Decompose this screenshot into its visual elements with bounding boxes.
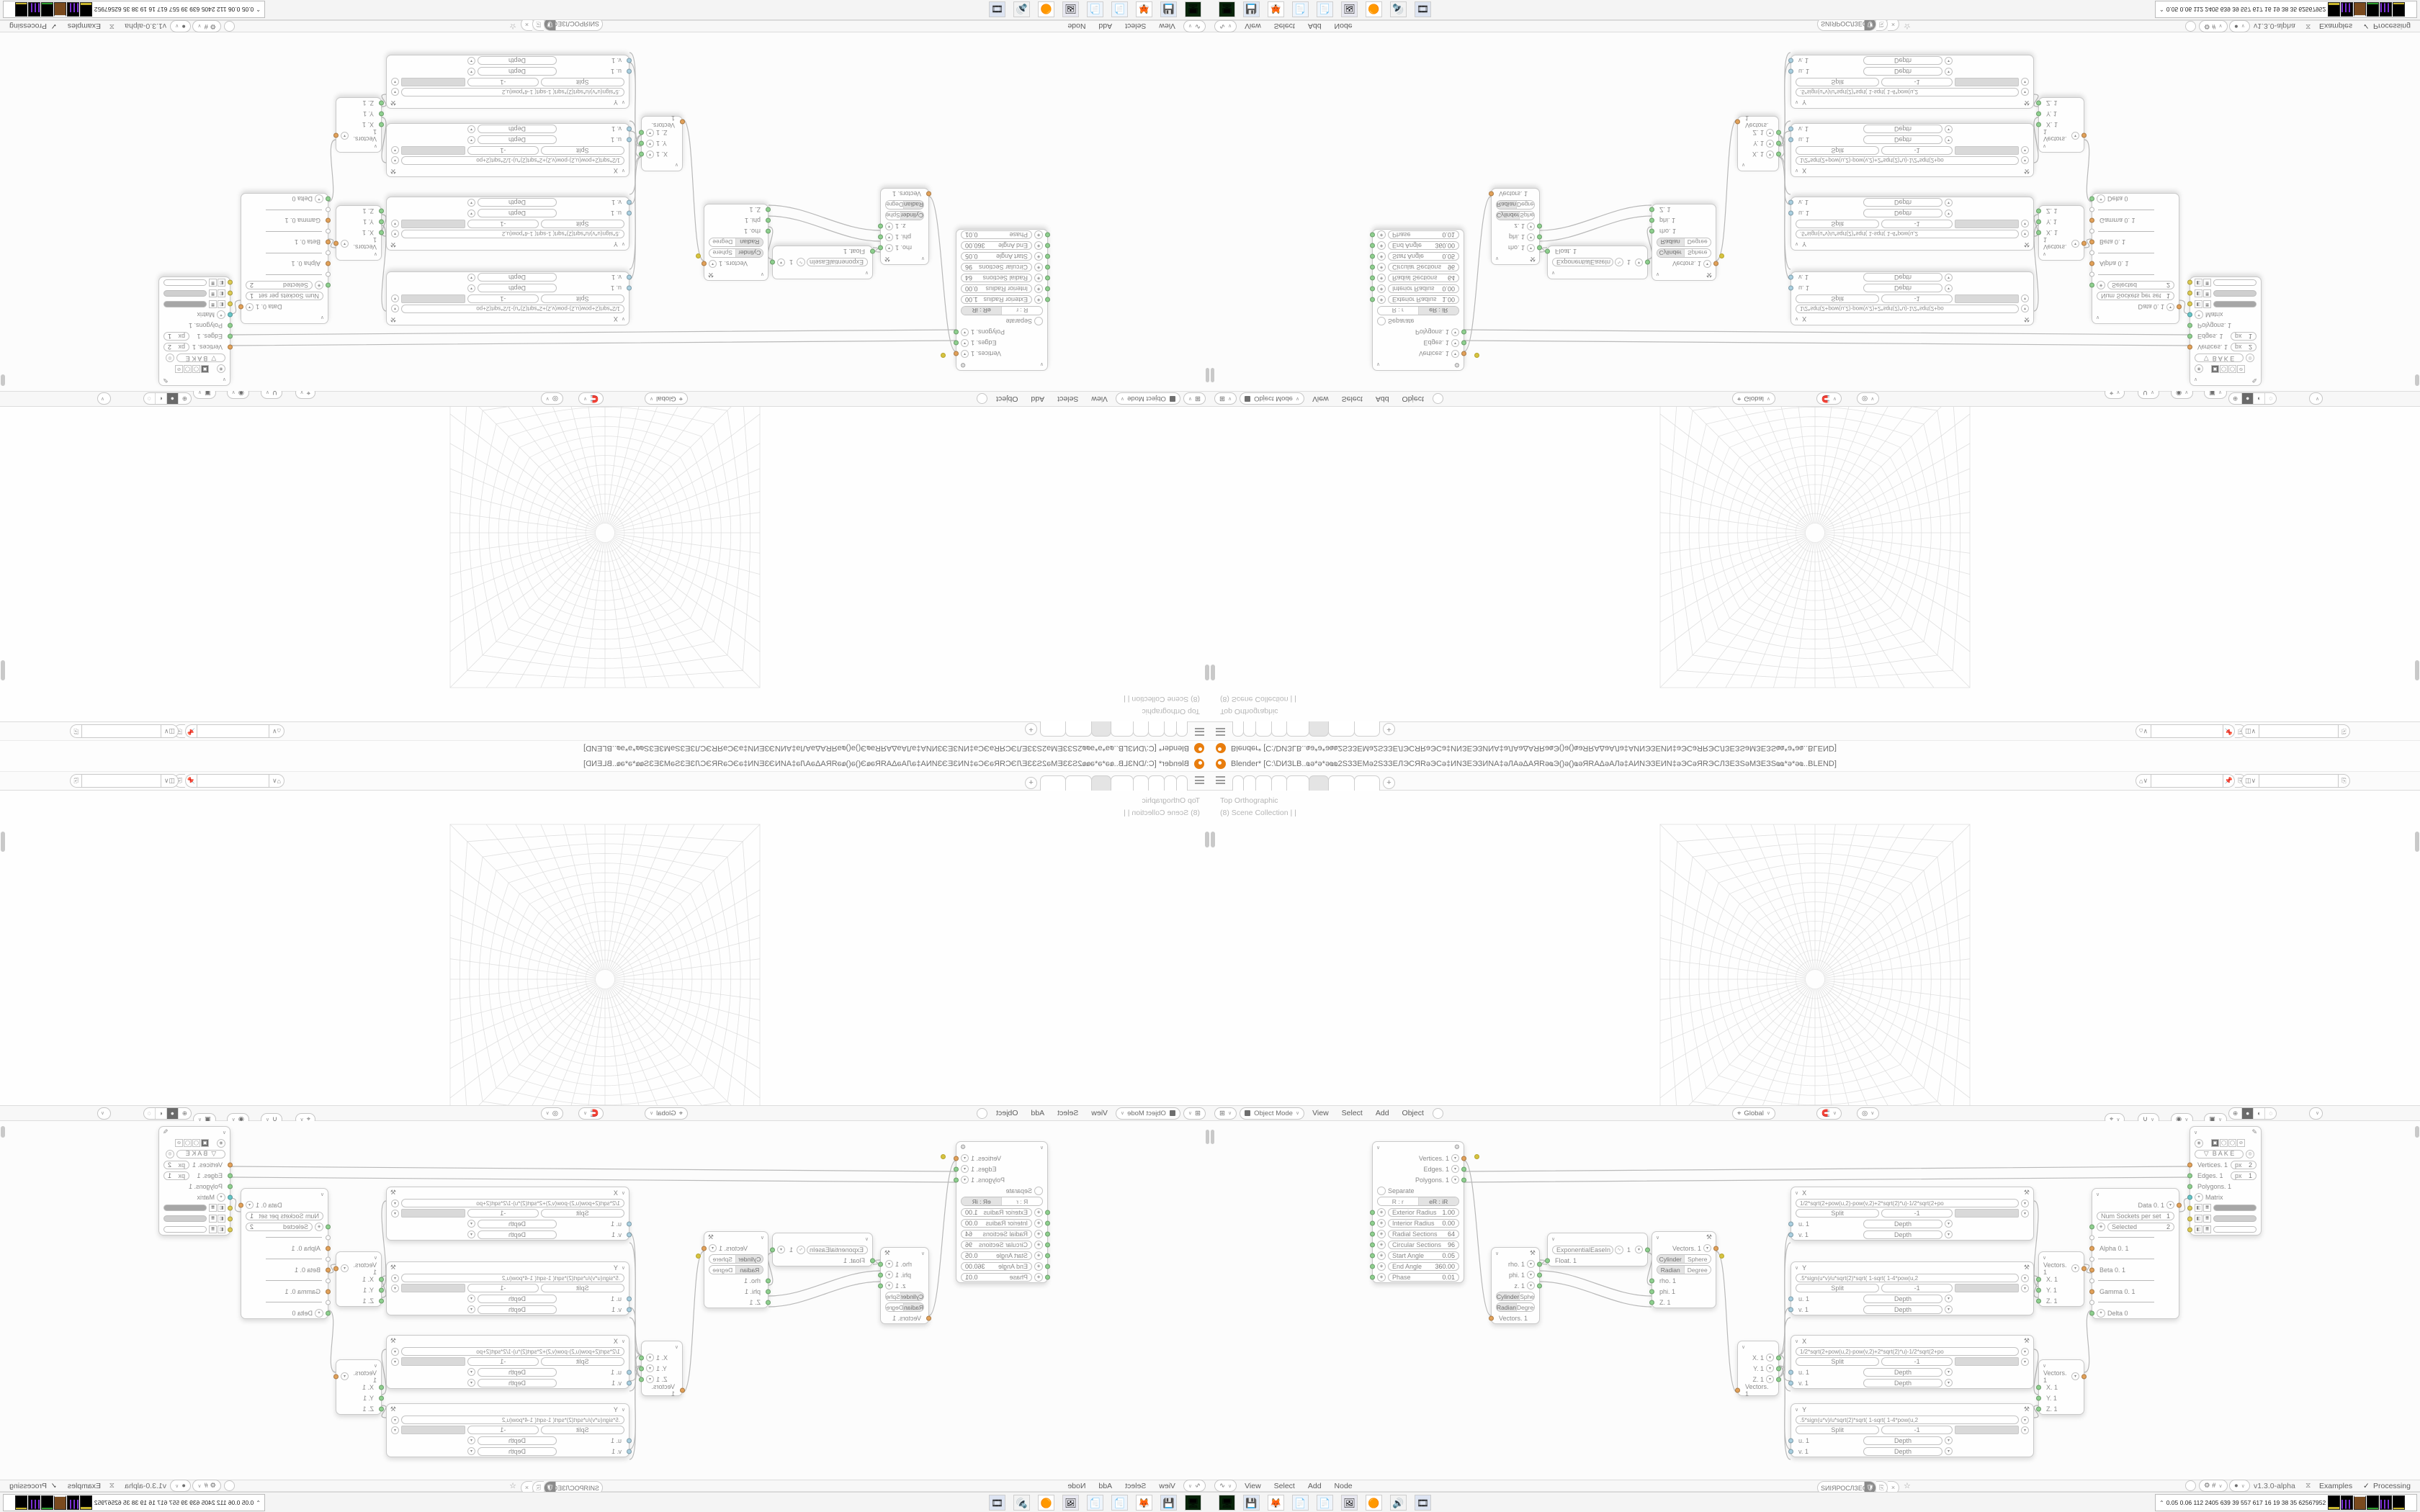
socket-menu-button[interactable]: ▾: [777, 258, 785, 266]
socket[interactable]: [2089, 1300, 2094, 1305]
node-easing[interactable]: ∨ExponentialEaseIn∨∿1▾Float. 1: [1547, 246, 1648, 279]
reroute-dot[interactable]: [1474, 353, 1479, 358]
socket[interactable]: [2089, 283, 2094, 288]
socket-menu-button[interactable]: ▾: [2021, 78, 2029, 86]
taskbar-speaker-icon[interactable]: 🔊: [1390, 1, 1407, 17]
socket-menu-button[interactable]: ▾: [1451, 1165, 1459, 1173]
node-formula-x2[interactable]: ∨X⚒1/2*sqrt(2+pow(u,2)-pow(v,2)+2*sqrt(2…: [1791, 123, 2034, 177]
socket[interactable]: [766, 1289, 771, 1294]
socket-menu-button[interactable]: ▾: [1703, 1244, 1711, 1252]
ne-menu-view[interactable]: View: [1159, 1482, 1175, 1490]
socket[interactable]: [1045, 243, 1050, 248]
taskbar-notepad-1-icon[interactable]: 📄: [1292, 1495, 1309, 1511]
shading-dropdown[interactable]: ∨: [97, 393, 111, 405]
scene-pin-icon[interactable]: 📌: [185, 724, 197, 738]
draw-verts-toggle[interactable]: ▣: [201, 1139, 209, 1147]
socket[interactable]: [766, 1300, 771, 1305]
socket[interactable]: [627, 1232, 632, 1237]
ne-menu-node[interactable]: Node: [1335, 22, 1353, 31]
node-sidebar-handle[interactable]: [2415, 1126, 2419, 1138]
draw-faces-toggle[interactable]: ◯: [184, 1139, 192, 1147]
node-easing[interactable]: ∨ExponentialEaseIn∨∿1▾Float. 1: [1547, 1233, 1648, 1266]
socket-menu-button[interactable]: ▾: [391, 305, 399, 313]
socket-menu-button[interactable]: ▾: [1527, 244, 1535, 252]
node-header[interactable]: ∨: [1548, 1233, 1647, 1244]
socket[interactable]: [2187, 280, 2192, 285]
reroute-dot[interactable]: [696, 1254, 701, 1259]
node-header[interactable]: ∨X⚒: [387, 166, 629, 176]
vp-menu-object[interactable]: Object: [996, 1109, 1018, 1117]
bake-settings-icon[interactable]: ◎: [2246, 354, 2254, 363]
socket[interactable]: [1045, 1264, 1050, 1269]
workspace-tab-4[interactable]: [1133, 775, 1149, 791]
socket[interactable]: [379, 101, 384, 106]
node-vec-polar-in[interactable]: ∨⚒Vectors. 1▾CylinderSphereRadianDegreer…: [1652, 1231, 1716, 1308]
socket[interactable]: [379, 209, 384, 214]
taskbar-blender-icon[interactable]: 🟠: [1366, 1495, 1382, 1511]
socket-menu-button[interactable]: ▾: [961, 1154, 969, 1162]
sidebar-collapse-handle[interactable]: [1, 660, 5, 680]
ne-menu-view[interactable]: View: [1245, 1482, 1261, 1490]
socket[interactable]: [1045, 233, 1050, 238]
socket[interactable]: [2177, 305, 2182, 310]
socket-menu-button[interactable]: ▾: [2021, 1348, 2029, 1356]
socket[interactable]: [878, 1283, 883, 1288]
node-header-icon[interactable]: ⚒: [390, 99, 396, 107]
checkbox-circle[interactable]: [1377, 318, 1386, 326]
socket[interactable]: [2187, 1205, 2192, 1210]
window-titlebar[interactable]: Blender* [C:\DИЗLB..ҩә*ә*әҩҩ2SЗЗEMә2SЗЗE…: [1210, 740, 2420, 756]
node-header-icon[interactable]: ⚒: [1530, 1249, 1536, 1257]
checkbox-circle[interactable]: [1034, 1187, 1043, 1195]
shading-mode-4[interactable]: ◌: [144, 394, 155, 405]
scene-browse-button[interactable]: ⌂∨: [2136, 774, 2151, 788]
node-vec-polar-in[interactable]: ∨⚒Vectors. 1▾CylinderSphereRadianDegreer…: [704, 1231, 768, 1308]
socket-menu-button[interactable]: ▾: [391, 1274, 399, 1282]
socket[interactable]: [639, 130, 644, 135]
workspace-tab-2[interactable]: [1243, 721, 1256, 737]
viewport-extra-button[interactable]: [977, 394, 987, 405]
socket[interactable]: [2187, 1227, 2192, 1232]
node-header[interactable]: ∨⚒: [1492, 1248, 1539, 1259]
socket-menu-button[interactable]: ▾: [1766, 1354, 1774, 1362]
socket[interactable]: [2036, 1287, 2041, 1292]
scene-browse-button[interactable]: ⌂∨: [269, 774, 284, 788]
shading-mode-1[interactable]: ⊕: [2229, 1108, 2242, 1119]
socket[interactable]: [954, 1166, 959, 1171]
socket[interactable]: [1645, 260, 1650, 265]
examples-menu[interactable]: Examples: [68, 22, 101, 31]
node-header-icon[interactable]: ⚒: [390, 315, 396, 323]
node-header-icon[interactable]: ⚙: [1454, 361, 1460, 369]
bake-settings-icon[interactable]: ◎: [166, 1150, 174, 1158]
node-viewer-draw[interactable]: ∨✎◉▣◯◯⊘▽ B A K E◎Vertices. 1px2Edges. 1p…: [158, 1126, 230, 1236]
ne-blank-button[interactable]: [2185, 1480, 2196, 1491]
node-header[interactable]: ∨X⚒: [387, 314, 629, 325]
ne-menu-node[interactable]: Node: [1067, 1482, 1085, 1490]
socket-menu-button[interactable]: ▾: [2071, 1372, 2079, 1380]
sidebar-collapse-handle[interactable]: [2415, 660, 2419, 680]
node-torus[interactable]: ∨⚙Vertices. 1▾Edges. 1▾Polygons. 1▾Separ…: [1372, 229, 1464, 371]
node-header[interactable]: ∨Y⚒: [1791, 97, 2033, 108]
socket-menu-button[interactable]: ▾: [1945, 1220, 1953, 1228]
node-vec-in-2[interactable]: ∨Vectors. 1▾X. 1Y. 1Z. 1: [2038, 1359, 2084, 1415]
workspace-tab-5[interactable]: [1286, 721, 1309, 737]
socket[interactable]: [2187, 334, 2192, 339]
socket[interactable]: [1370, 1253, 1375, 1258]
vp-menu-select[interactable]: Select: [1057, 1109, 1078, 1117]
socket[interactable]: [627, 1449, 632, 1454]
node-editor[interactable]: ∨⚙Vertices. 1▾Edges. 1▾Polygons. 1▾Separ…: [1210, 32, 2420, 391]
socket[interactable]: [627, 211, 632, 216]
socket-menu-button[interactable]: ▾: [2166, 1201, 2174, 1209]
socket[interactable]: [379, 230, 384, 235]
socket[interactable]: [1649, 207, 1654, 212]
socket[interactable]: [2036, 112, 2041, 117]
socket[interactable]: [2187, 1173, 2192, 1178]
bake-button[interactable]: ▽ B A K E: [2195, 354, 2244, 363]
socket[interactable]: [926, 1315, 931, 1320]
taskbar-media-window-icon[interactable]: 🖼: [1062, 1495, 1079, 1511]
socket[interactable]: [379, 1385, 384, 1390]
socket[interactable]: [627, 69, 632, 74]
node-vec-in-1[interactable]: ∨Vectors. 1▾X. 1Y. 1Z. 1: [336, 1251, 382, 1307]
taskbar-blender-icon[interactable]: 🟠: [1038, 1, 1054, 17]
viewport-3d[interactable]: Top Orthographic (8) Scene Collection | …: [0, 407, 1210, 721]
node-formula-y1[interactable]: ∨Y⚒.5*sign(u*v)/u*sqrt(2)*sqrt( 1-sqrt( …: [1791, 197, 2034, 251]
socket[interactable]: [326, 207, 331, 212]
socket-menu-button[interactable]: ▾: [391, 1200, 399, 1207]
socket-menu-button[interactable]: ▾: [2021, 147, 2029, 155]
workspace-tab-8[interactable]: [1040, 721, 1066, 737]
socket[interactable]: [2187, 1216, 2192, 1221]
socket-menu-button[interactable]: ▾: [646, 140, 654, 148]
node-editor[interactable]: ∨⚙Vertices. 1▾Edges. 1▾Polygons. 1▾Separ…: [0, 32, 1210, 391]
socket[interactable]: [1735, 1387, 1740, 1392]
draw-faces-toggle[interactable]: ◯: [2228, 365, 2236, 373]
socket-menu-button[interactable]: ▾: [2021, 1200, 2029, 1207]
socket[interactable]: [2036, 230, 2041, 235]
eye-icon[interactable]: ◉: [2195, 1139, 2203, 1148]
socket-menu-button[interactable]: ▾: [467, 284, 475, 292]
socket[interactable]: [954, 330, 959, 335]
snap-toggle[interactable]: 🧲∨: [1816, 1107, 1842, 1120]
node-formula-y1[interactable]: ∨Y⚒.5*sign(u*v)/u*sqrt(2)*sqrt( 1-sqrt( …: [386, 197, 629, 251]
socket[interactable]: [1370, 233, 1375, 238]
node-vec-in-2[interactable]: ∨Vectors. 1▾X. 1Y. 1Z. 1: [2038, 97, 2084, 153]
socket-menu-button[interactable]: ▾: [777, 1246, 785, 1254]
node-header-icon[interactable]: ⚒: [884, 1249, 890, 1257]
node-header-icon[interactable]: ✎: [2251, 1128, 2257, 1136]
socket-menu-button[interactable]: ▾: [2166, 303, 2174, 311]
node-vec-in-1[interactable]: ∨Vectors. 1▾X. 1Y. 1Z. 1: [2038, 205, 2084, 261]
draw-verts-toggle[interactable]: ▣: [2211, 365, 2219, 373]
scene-pin-icon[interactable]: 📌: [2223, 774, 2235, 788]
socket[interactable]: [379, 1298, 384, 1303]
node-vec-in-2[interactable]: ∨Vectors. 1▾X. 1Y. 1Z. 1: [336, 1359, 382, 1415]
socket[interactable]: [1788, 286, 1793, 291]
add-workspace-button[interactable]: +: [1025, 777, 1037, 789]
socket[interactable]: [228, 1194, 233, 1200]
socket[interactable]: [1045, 1253, 1050, 1258]
socket[interactable]: [766, 1278, 771, 1283]
socket[interactable]: [326, 229, 331, 234]
taskbar-filmstrip-icon[interactable]: 🎞: [989, 1, 1005, 17]
socket[interactable]: [1788, 69, 1793, 74]
node-input-switch[interactable]: ∨Data 0. 1▾Num Sockets per set1◈Selected…: [241, 1188, 328, 1319]
socket-menu-button[interactable]: ▾: [246, 1201, 254, 1209]
shading-mode-3[interactable]: ◐: [155, 394, 166, 405]
hamburger-menu-icon[interactable]: [1195, 728, 1204, 736]
taskbar-notepad-1-icon[interactable]: 📄: [1111, 1, 1128, 17]
socket[interactable]: [2187, 312, 2192, 318]
socket-menu-button[interactable]: ▾: [391, 1358, 399, 1366]
node-vec-polar-out[interactable]: ∨⚒rho. 1▾phi. 1▾z. 1▾CylinderSphereRadia…: [880, 188, 929, 265]
node-header-icon[interactable]: ⚒: [390, 1189, 396, 1197]
socket[interactable]: [379, 220, 384, 225]
viewport-extra-button[interactable]: [1433, 1108, 1443, 1119]
node-header-icon[interactable]: ✎: [163, 376, 169, 384]
draw-verts-toggle[interactable]: ▣: [201, 365, 209, 373]
transform-orientation[interactable]: ⌖ Global ∨: [645, 393, 688, 405]
viewport-3d[interactable]: Top Orthographic (8) Scene Collection | …: [1210, 791, 2420, 1105]
viewlayer-name-field[interactable]: [81, 724, 161, 738]
shading-dropdown[interactable]: ∨: [2309, 1107, 2323, 1120]
processing-toggle[interactable]: Processing: [9, 1482, 47, 1490]
draw-edges-toggle[interactable]: ◯: [2220, 365, 2228, 373]
socket[interactable]: [1370, 1242, 1375, 1247]
socket[interactable]: [326, 251, 331, 256]
socket-menu-button[interactable]: ▾: [885, 233, 893, 241]
scene-name-field[interactable]: [2151, 724, 2223, 738]
socket[interactable]: [1788, 1449, 1793, 1454]
socket-menu-button[interactable]: ▾: [467, 1230, 475, 1238]
socket[interactable]: [1776, 152, 1781, 157]
taskbar-media-window-icon[interactable]: 🖼: [1341, 1, 1358, 17]
socket[interactable]: [1045, 1274, 1050, 1279]
socket[interactable]: [379, 1277, 384, 1282]
socket-menu-button[interactable]: ▾: [646, 1364, 654, 1372]
scene-pin-icon[interactable]: 📌: [185, 774, 197, 788]
node-toolbar-handle[interactable]: [1206, 368, 1209, 382]
node-viewer-draw[interactable]: ∨✎◉▣◯◯⊘▽ B A K E◎Vertices. 1px2Edges. 1p…: [2190, 276, 2262, 386]
node-header[interactable]: ∨: [241, 1189, 328, 1200]
ne-menu-select[interactable]: Select: [1274, 22, 1295, 31]
socket[interactable]: [1537, 224, 1542, 229]
socket[interactable]: [1776, 1355, 1781, 1360]
socket[interactable]: [2036, 209, 2041, 214]
tray-caret-icon[interactable]: ⌃: [2159, 6, 2164, 13]
socket[interactable]: [639, 152, 644, 157]
viewport-editor-type-button[interactable]: ⊞ ∨: [1183, 1107, 1206, 1120]
socket[interactable]: [680, 1387, 685, 1392]
vp-menu-object[interactable]: Object: [1402, 1109, 1424, 1117]
socket-menu-button[interactable]: ▾: [1635, 1246, 1643, 1254]
node-vec-polar-out[interactable]: ∨⚒rho. 1▾phi. 1▾z. 1▾CylinderSphereRadia…: [1491, 188, 1540, 265]
taskbar-notepad-2-icon[interactable]: 📄: [1087, 1, 1103, 17]
workspace-tab-6[interactable]: [1309, 721, 1329, 737]
socket[interactable]: [1045, 1231, 1050, 1236]
socket[interactable]: [2089, 229, 2094, 234]
node-header[interactable]: ∨: [773, 1233, 872, 1244]
color-swatch[interactable]: [163, 290, 207, 297]
snap-toggle[interactable]: 🧲∨: [578, 393, 604, 405]
node-formula-y2[interactable]: ∨Y⚒.5*sign(u*v)/u*sqrt(2)*sqrt( 1-sqrt( …: [386, 1403, 629, 1457]
workspace-tab-3[interactable]: [1255, 775, 1272, 791]
taskbar-console-icon[interactable]: 🖥: [1219, 1495, 1235, 1511]
toolbar-collapse-handle[interactable]: [1205, 665, 1209, 680]
shading-mode-1[interactable]: ⊕: [2229, 394, 2242, 405]
socket[interactable]: [2187, 291, 2192, 296]
vp-menu-object[interactable]: Object: [996, 395, 1018, 403]
socket[interactable]: [333, 133, 339, 138]
socket[interactable]: [766, 218, 771, 223]
socket[interactable]: [1461, 1177, 1466, 1182]
ne-blank-button[interactable]: [224, 1480, 235, 1491]
vp-menu-view[interactable]: View: [1091, 395, 1108, 403]
socket[interactable]: [1788, 275, 1793, 280]
socket-menu-button[interactable]: ▾: [885, 244, 893, 252]
taskbar-console-icon[interactable]: 🖥: [1219, 1, 1235, 17]
ne-layout-button[interactable]: ⚙ #∨: [192, 20, 221, 32]
viewlayer-copy-icon[interactable]: ⎘: [2339, 774, 2350, 788]
shading-dropdown[interactable]: ∨: [97, 1107, 111, 1120]
viewlayer-name-field[interactable]: [2259, 774, 2339, 788]
socket-menu-button[interactable]: ▾: [467, 1295, 475, 1302]
node-header-icon[interactable]: ⚒: [2024, 1189, 2030, 1197]
socket-menu-button[interactable]: ▾: [1451, 1176, 1459, 1184]
shading-mode-4[interactable]: ◌: [144, 1108, 155, 1119]
node-header[interactable]: ∨X⚒: [1791, 1187, 2033, 1198]
node-editor-type-button[interactable]: ∿ ∨: [1214, 20, 1237, 32]
ne-draw-button[interactable]: ●∨: [170, 1480, 191, 1492]
node-header-icon[interactable]: ⚒: [2024, 240, 2030, 248]
socket[interactable]: [627, 1221, 632, 1226]
node-header-icon[interactable]: ⚒: [1706, 271, 1712, 279]
socket-menu-button[interactable]: ▾: [961, 1176, 969, 1184]
socket[interactable]: [1735, 120, 1740, 125]
node-header[interactable]: ∨X⚒: [1791, 166, 2033, 176]
node-toolbar-handle[interactable]: [1211, 1130, 1214, 1144]
socket[interactable]: [1461, 1156, 1466, 1161]
socket[interactable]: [627, 1296, 632, 1301]
node-header-icon[interactable]: ✎: [2251, 376, 2257, 384]
node-editor-type-button[interactable]: ∿ ∨: [1183, 20, 1206, 32]
socket-menu-button[interactable]: ▾: [391, 78, 399, 86]
socket[interactable]: [1537, 235, 1542, 240]
proportional-edit-toggle[interactable]: ◎∨: [1857, 393, 1879, 405]
socket-menu-button[interactable]: ▾: [885, 222, 893, 230]
processing-toggle[interactable]: Processing: [2373, 22, 2411, 31]
socket[interactable]: [2089, 240, 2094, 245]
socket[interactable]: [2089, 261, 2094, 266]
node-header[interactable]: ∨⚙: [1373, 359, 1464, 370]
socket-menu-button[interactable]: ▾: [1451, 1154, 1459, 1162]
node-header-icon[interactable]: ⚙: [960, 361, 966, 369]
pin-icon[interactable]: ☆: [509, 1481, 516, 1490]
vp-menu-view[interactable]: View: [1312, 395, 1329, 403]
taskbar-speaker-icon[interactable]: 🔊: [1390, 1495, 1407, 1511]
scene-browse-button[interactable]: ⌂∨: [2136, 724, 2151, 738]
socket[interactable]: [627, 138, 632, 143]
node-formula-x1[interactable]: ∨X⚒1/2*sqrt(2+pow(u,2)-pow(v,2)+2*sqrt(2…: [386, 271, 629, 325]
socket-menu-button[interactable]: ▾: [467, 274, 475, 282]
socket-menu-button[interactable]: ▾: [1703, 260, 1711, 268]
socket-menu-button[interactable]: ▾: [961, 1165, 969, 1173]
socket-menu-button[interactable]: ▾: [467, 1447, 475, 1455]
shading-mode-4[interactable]: ◌: [2265, 1108, 2276, 1119]
node-header[interactable]: ∨✎: [2190, 374, 2261, 385]
node-viewer-draw[interactable]: ∨✎◉▣◯◯⊘▽ B A K E◎Vertices. 1px2Edges. 1p…: [158, 276, 230, 386]
socket[interactable]: [326, 1256, 331, 1261]
socket-menu-button[interactable]: ▾: [1945, 68, 1953, 76]
reroute-dot[interactable]: [1474, 1154, 1479, 1159]
node-torus[interactable]: ∨⚙Vertices. 1▾Edges. 1▾Polygons. 1▾Separ…: [1372, 1141, 1464, 1283]
viewport-extra-button[interactable]: [977, 1108, 987, 1119]
viewlayer-browse-button[interactable]: ◫∨: [161, 774, 179, 788]
checkbox-circle[interactable]: [1377, 1187, 1386, 1195]
viewlayer-browse-button[interactable]: ◫∨: [161, 724, 179, 738]
socket[interactable]: [680, 120, 685, 125]
socket[interactable]: [1370, 1231, 1375, 1236]
socket-menu-button[interactable]: ▾: [1945, 199, 1953, 207]
socket[interactable]: [2187, 1184, 2192, 1189]
node-input-switch[interactable]: ∨Data 0. 1▾Num Sockets per set1◈Selected…: [241, 193, 328, 324]
node-formula-x2[interactable]: ∨X⚒1/2*sqrt(2+pow(u,2)-pow(v,2)+2*sqrt(2…: [386, 123, 629, 177]
node-header[interactable]: ∨: [1738, 1341, 1778, 1352]
socket[interactable]: [326, 1246, 331, 1251]
socket-menu-button[interactable]: ▾: [885, 1282, 893, 1290]
mode-selector[interactable]: Object Mode ∨: [1240, 393, 1304, 405]
socket[interactable]: [228, 323, 233, 328]
node-header[interactable]: ∨⚒: [1652, 269, 1716, 280]
socket[interactable]: [326, 272, 331, 277]
node-header[interactable]: ∨Y⚒: [387, 1262, 629, 1273]
socket[interactable]: [2081, 1374, 2087, 1379]
window-titlebar[interactable]: Blender* [C:\DИЗLB..ҩә*ә*әҩҩ2SЗЗEMә2SЗЗE…: [1210, 756, 2420, 772]
node-header[interactable]: ∨: [2092, 1189, 2179, 1200]
socket-menu-button[interactable]: ▾: [709, 1244, 717, 1252]
socket-menu-button[interactable]: ▾: [1766, 140, 1774, 148]
socket[interactable]: [1776, 1377, 1781, 1382]
socket[interactable]: [1045, 1210, 1050, 1215]
socket-menu-button[interactable]: ▾: [1945, 1305, 1953, 1313]
socket-menu-button[interactable]: ▾: [2021, 157, 2029, 165]
socket[interactable]: [2177, 1202, 2182, 1207]
viewport-editor-type-button[interactable]: ⊞ ∨: [1214, 1107, 1237, 1120]
taskbar-notepad-2-icon[interactable]: 📄: [1087, 1495, 1103, 1511]
socket[interactable]: [326, 240, 331, 245]
socket-menu-button[interactable]: ▾: [1527, 1260, 1535, 1268]
node-vec-out[interactable]: ∨X. 1▾Y. 1▾Z. 1▾Vectors. 1: [1737, 116, 1779, 171]
socket[interactable]: [333, 1374, 339, 1379]
node-header[interactable]: ∨⚒: [881, 1248, 928, 1259]
workspace-tab-4[interactable]: [1271, 721, 1287, 737]
socket[interactable]: [1461, 351, 1466, 356]
taskbar-speaker-icon[interactable]: 🔊: [1013, 1495, 1030, 1511]
node-torus[interactable]: ∨⚙Vertices. 1▾Edges. 1▾Polygons. 1▾Separ…: [956, 229, 1048, 371]
socket[interactable]: [2036, 1277, 2041, 1282]
node-toolbar-handle[interactable]: [1211, 368, 1214, 382]
socket-menu-button[interactable]: ▾: [1451, 350, 1459, 358]
socket[interactable]: [2089, 1267, 2094, 1272]
node-formula-x2[interactable]: ∨X⚒1/2*sqrt(2+pow(u,2)-pow(v,2)+2*sqrt(2…: [386, 1335, 629, 1389]
node-vec-polar-out[interactable]: ∨⚒rho. 1▾phi. 1▾z. 1▾CylinderSphereRadia…: [880, 1247, 929, 1324]
socket[interactable]: [326, 1267, 331, 1272]
node-vec-out[interactable]: ∨X. 1▾Y. 1▾Z. 1▾Vectors. 1: [641, 116, 683, 171]
node-header[interactable]: ∨: [241, 312, 328, 323]
socket[interactable]: [326, 218, 331, 223]
